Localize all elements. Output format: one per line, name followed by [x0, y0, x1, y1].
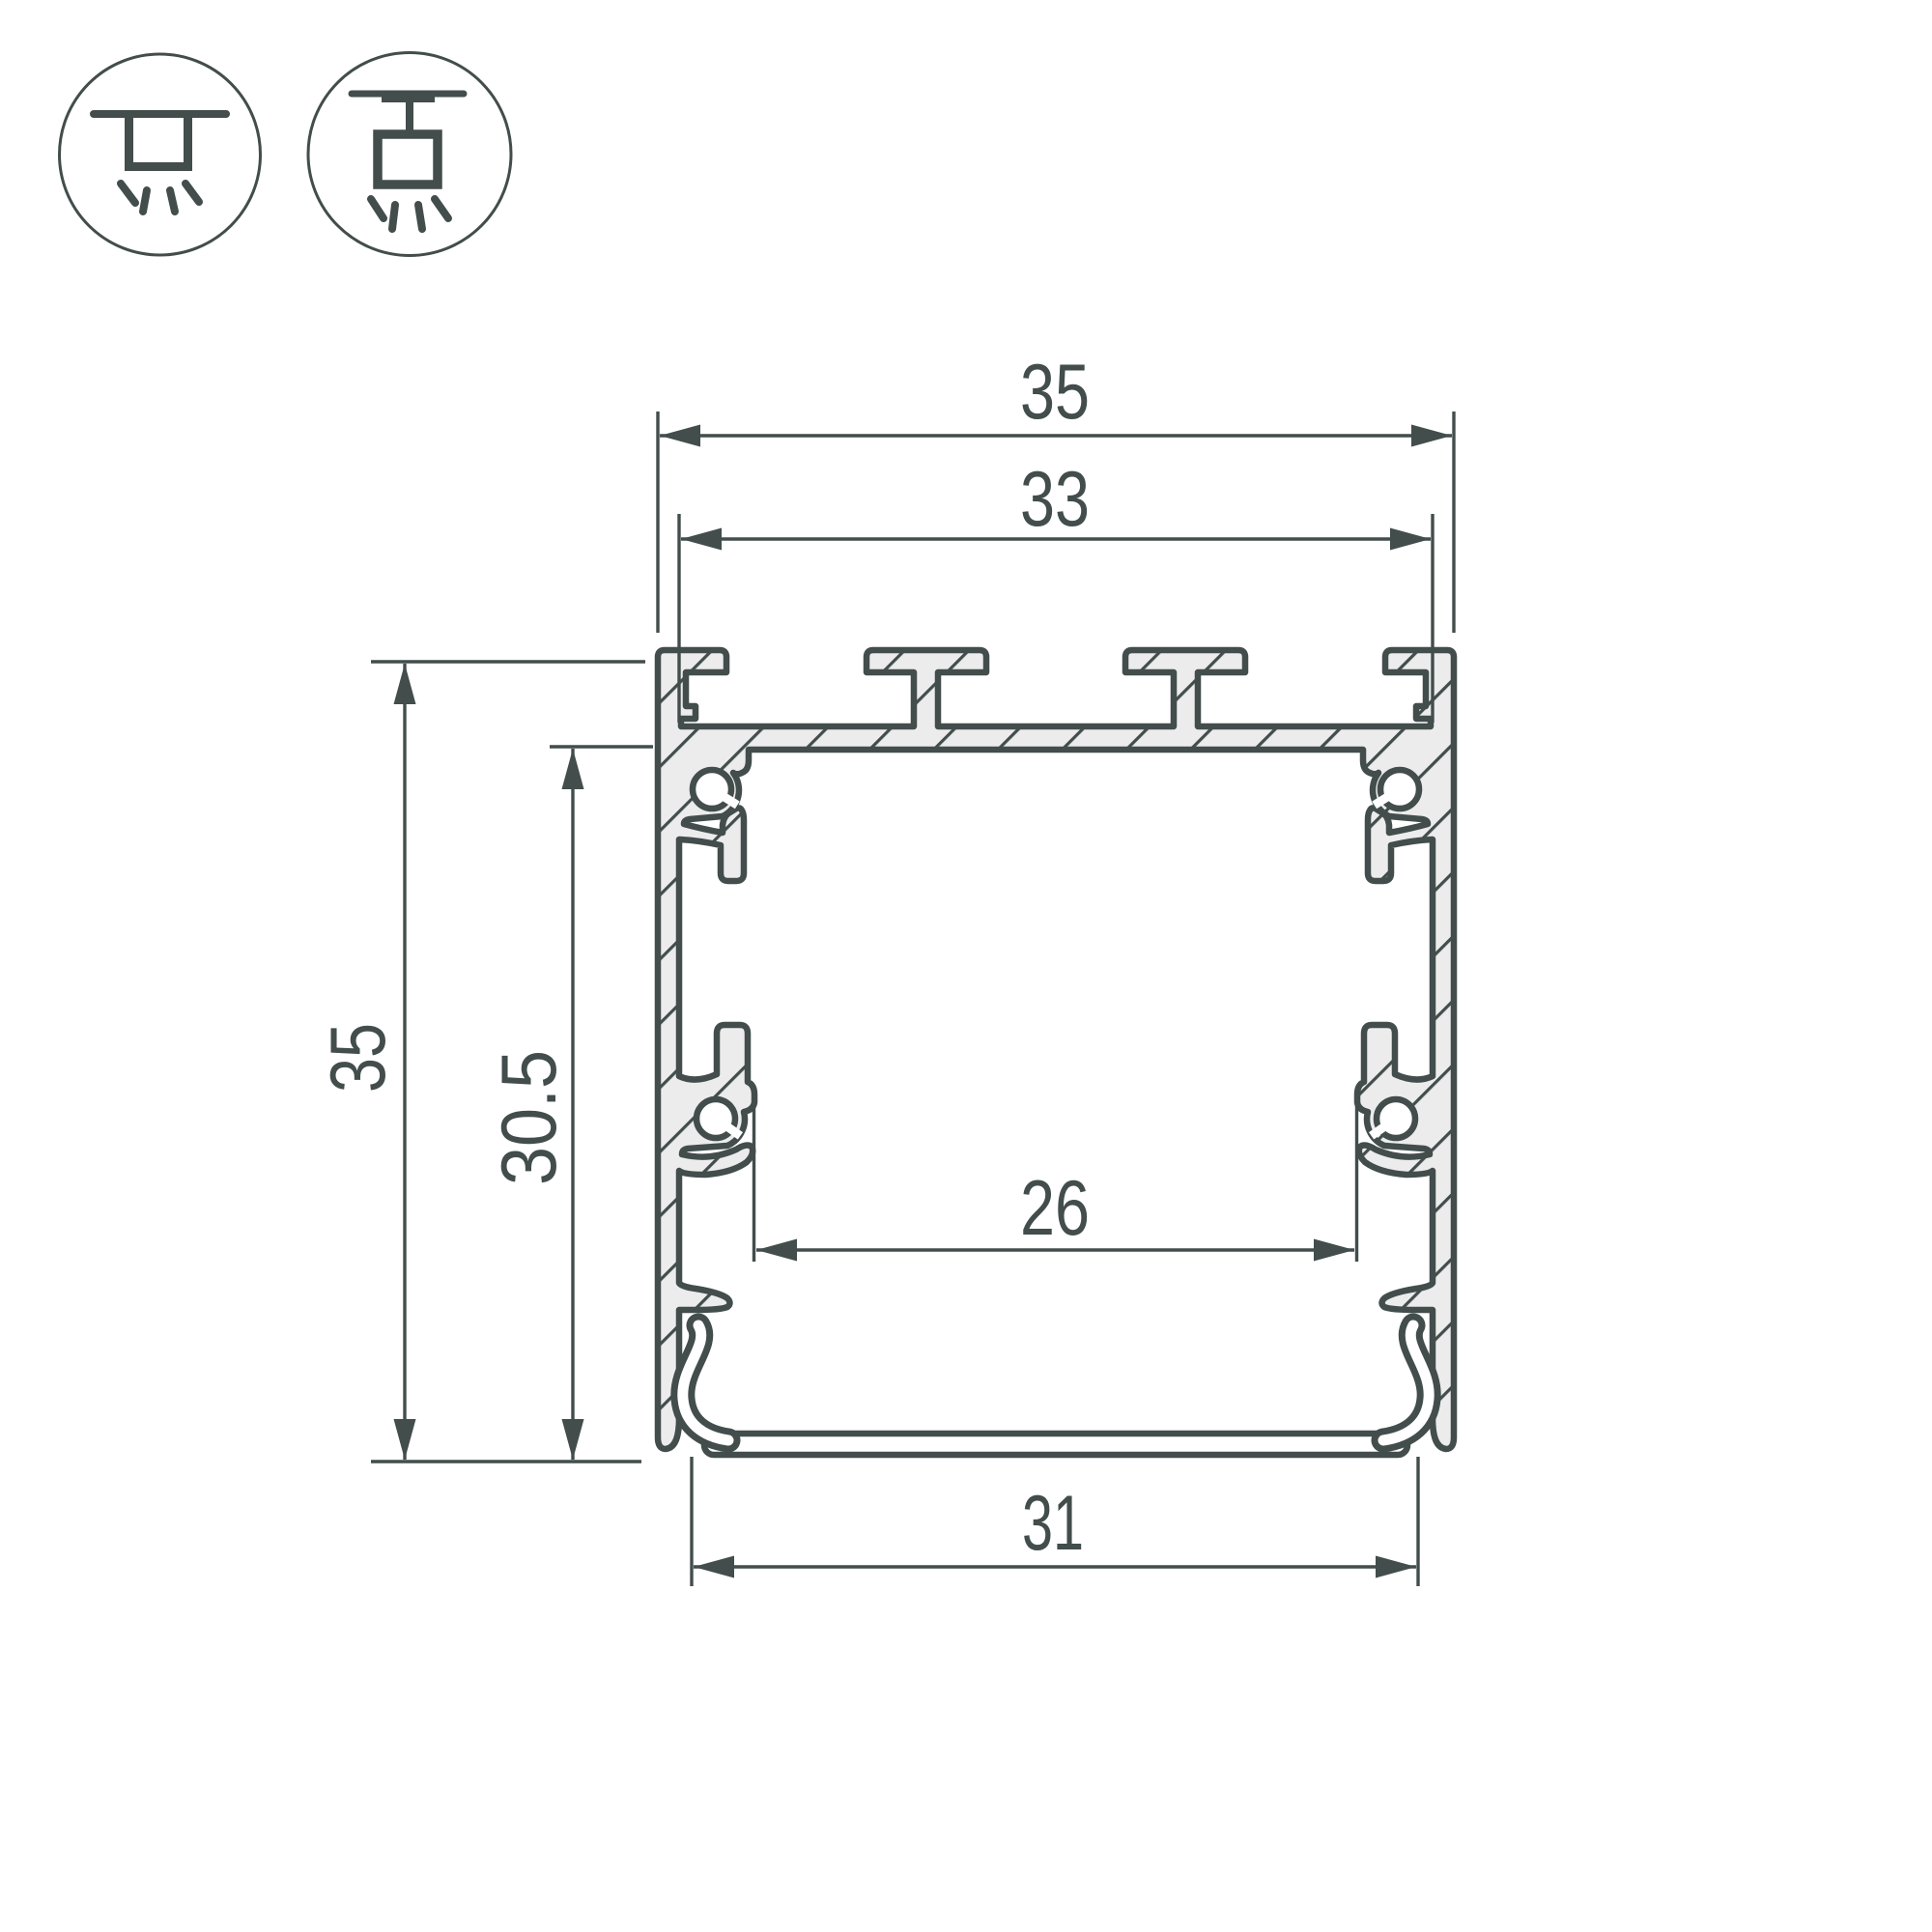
svg-text:33: 33: [1020, 456, 1090, 543]
svg-text:35: 35: [1020, 349, 1090, 436]
svg-text:35: 35: [315, 1023, 402, 1093]
svg-text:30.5: 30.5: [486, 1050, 573, 1185]
svg-text:31: 31: [1022, 1480, 1084, 1567]
svg-text:26: 26: [1020, 1165, 1090, 1252]
